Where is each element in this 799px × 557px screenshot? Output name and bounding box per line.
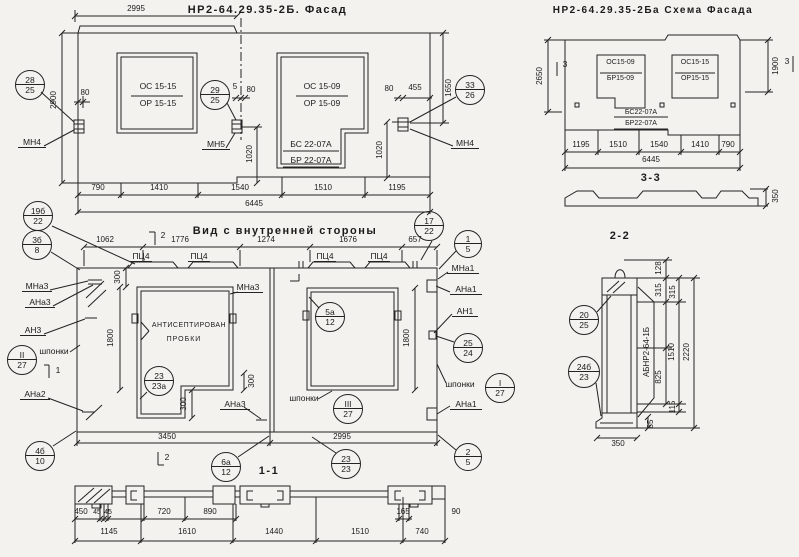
dim-1900: 1900	[771, 46, 781, 86]
label-mna1-right: МНа1	[447, 264, 479, 274]
pad-label-pc4-3: ПЦ4	[314, 252, 336, 262]
inner-view-title: Вид с внутренней стороны	[170, 225, 400, 237]
schema-dim-1195: 1195	[567, 141, 595, 150]
inner-dim-lines	[44, 232, 437, 465]
inner-dim-1274: 1274	[252, 236, 280, 245]
section-mark-2-top: 2	[158, 231, 168, 240]
section-mark-3-left: 3	[560, 60, 570, 69]
note-plugs: ПРОБКИ	[158, 336, 210, 344]
anchor-label-mn5: МН5	[202, 140, 230, 150]
inner-dim-1676: 1676	[334, 236, 362, 245]
label-ana2-left: АНа2	[20, 390, 50, 400]
label-shponki-left: шпонки	[36, 347, 72, 356]
facade-door-label-bottom: БР 22-07А	[283, 156, 339, 165]
schema-title: НР2-64.29.35-2Ба Схема Фасада	[538, 5, 768, 16]
schema-dim-1410: 1410	[687, 141, 713, 150]
dim-1800-right: 1800	[402, 318, 412, 358]
balloon-3b-8: 3б8	[22, 230, 52, 260]
inner-dim-3450: 3450	[150, 433, 184, 442]
inner-dim-1776: 1776	[166, 236, 194, 245]
drawing-sheet: НР2-64.29.35-2Б. Фасад НР2-64.29.35-2Ба …	[0, 0, 799, 557]
inner-dim-2995: 2995	[325, 433, 359, 442]
s11-dim-720: 720	[152, 508, 176, 517]
section-mark-2-bottom: 2	[162, 453, 172, 462]
s11-dim-45b: 45	[102, 509, 114, 517]
s22-dim-825: 825	[654, 357, 664, 397]
facade-dim-1510: 1510	[309, 184, 337, 193]
balloon-II-27: II27	[7, 345, 37, 375]
dim-300-top: 300	[113, 257, 123, 297]
schema-dim-1540: 1540	[646, 141, 672, 150]
balloon-5a-12: 5а12	[315, 302, 345, 332]
label-an3-left: АН3	[20, 326, 46, 336]
label-an1-right: АН1	[452, 307, 478, 317]
pad-label-pc4-2: ПЦ4	[188, 252, 210, 262]
schema-window1-label-top: ОС15-09	[598, 59, 643, 67]
balloon-1-5: 15	[454, 230, 482, 258]
dim-1650: 1650	[444, 68, 454, 108]
balloon-24b-23: 24б23	[568, 356, 600, 388]
schema-dim-6445: 6445	[634, 156, 668, 165]
balloon-23-23: 2323	[331, 449, 361, 479]
dim-5: 5	[230, 83, 240, 92]
balloon-2-5: 25	[454, 443, 482, 471]
balloon-29-25: 2925	[200, 80, 230, 110]
balloon-20-25: 2025	[569, 305, 599, 335]
balloon-17-22: 1722	[414, 211, 444, 241]
balloon-19b-22: 19б22	[23, 201, 53, 231]
pad-label-pc4-4: ПЦ4	[368, 252, 390, 262]
balloon-4b-10: 4б10	[25, 441, 55, 471]
dim-2995: 2995	[118, 5, 154, 14]
schema-window2-label-bottom: ОР15-15	[673, 75, 717, 83]
section-3-3-title: 3-3	[634, 172, 668, 184]
s22-dim-85: 85	[646, 404, 656, 444]
s22-dim-2220: 2220	[682, 332, 692, 372]
anchor-label-mn4-left: МН4	[18, 138, 46, 148]
dim-350-s33: 350	[771, 176, 781, 216]
facade-window1-label-bottom: ОР 15-15	[133, 99, 183, 108]
s22-dim-115: 115	[668, 387, 678, 427]
label-shponki-bottom: шпонки	[286, 394, 322, 403]
s22-vertical-label: АБНР2-64-1Б	[642, 302, 652, 402]
schema-window1-label-bottom: БР15-09	[598, 75, 643, 83]
balloon-6a-12: 6а12	[211, 452, 241, 482]
balloon-23-23a: 2323а	[144, 366, 174, 396]
facade-dim-1195: 1195	[383, 184, 411, 193]
section-mark-3-right: 3	[782, 57, 792, 66]
s11-dim-1510: 1510	[346, 528, 374, 537]
schema-door-label-top: БС22-07А	[613, 109, 669, 117]
label-shponki-right: шпонки	[442, 380, 478, 389]
label-mna3-window: МНа3	[233, 283, 263, 293]
dim-2900: 2900	[49, 80, 59, 120]
s11-dim-1145: 1145	[95, 528, 123, 537]
facade-title: НР2-64.29.35-2Б. Фасад	[160, 4, 375, 16]
schema-dim-lines	[544, 40, 793, 171]
label-ana3-left: АНа3	[25, 298, 55, 308]
inner-dim-1062: 1062	[92, 236, 118, 245]
dim-1020-mid: 1020	[245, 134, 255, 174]
anchor-label-mn4-right: МН4	[451, 139, 479, 149]
balloon-33-26: 3326	[455, 75, 485, 105]
dim-2650: 2650	[535, 56, 545, 96]
label-mna3-left: МНа3	[22, 282, 52, 292]
s22-dim-315b: 315	[668, 272, 678, 312]
facade-window1-label-top: ОС 15-15	[133, 82, 183, 91]
dim-300-bottom: 300	[179, 384, 189, 424]
dim-455: 455	[403, 84, 427, 93]
facade-window2-label-bottom: ОР 15-09	[296, 99, 348, 108]
schema-dim-790: 790	[717, 141, 739, 150]
dim-1020-right: 1020	[375, 130, 385, 170]
balloon-I-27: I27	[485, 373, 515, 403]
label-ana1-right-bottom: АНа1	[450, 400, 482, 410]
section-2-2-title: 2-2	[603, 230, 637, 242]
dim-80-left: 80	[77, 89, 93, 98]
dim-300-mid: 300	[247, 361, 257, 401]
schema-window2-label-top: ОС15-15	[673, 59, 717, 67]
facade-dim-790: 790	[85, 184, 111, 193]
facade-dim-6445: 6445	[236, 200, 272, 209]
s11-dim-450: 450	[70, 508, 92, 517]
note-antiseptic: АНТИСЕПТИРОВАН	[150, 322, 228, 330]
s11-dim-1440: 1440	[260, 528, 288, 537]
facade-door-label-top: БС 22-07А	[283, 140, 339, 149]
section-mark-1: 1	[53, 366, 63, 375]
s11-dim-90: 90	[448, 508, 464, 517]
s11-dim-1610: 1610	[173, 528, 201, 537]
pad-label-pc4-1: ПЦ4	[130, 252, 152, 262]
s11-dim-740: 740	[410, 528, 434, 537]
balloon-III-27: III27	[333, 394, 363, 424]
balloon-25-24: 2524	[453, 333, 483, 363]
s11-dim-890: 890	[198, 508, 222, 517]
schema-dim-1510: 1510	[605, 141, 631, 150]
s11-dim-165: 165	[392, 508, 414, 517]
schema-door-label-bottom: БР22-07А	[613, 120, 669, 128]
facade-dim-1410: 1410	[145, 184, 173, 193]
balloon-28-25: 2825	[15, 70, 45, 100]
facade-dim-1540: 1540	[226, 184, 254, 193]
label-ana3-window: АНа3	[220, 400, 250, 410]
s22-dim-350: 350	[605, 440, 631, 449]
s22-dim-315a: 315	[654, 270, 664, 310]
label-ana1-right: АНа1	[450, 285, 482, 295]
section-3-3-profile	[565, 189, 768, 206]
dim-80-mid: 80	[243, 86, 259, 95]
section-1-1-title: 1-1	[252, 465, 286, 477]
facade-window2-label-top: ОС 15-09	[296, 82, 348, 91]
dim-1800-left: 1800	[106, 318, 116, 358]
dim-80-right: 80	[381, 85, 397, 94]
s22-dim-1510: 1510	[667, 332, 677, 372]
